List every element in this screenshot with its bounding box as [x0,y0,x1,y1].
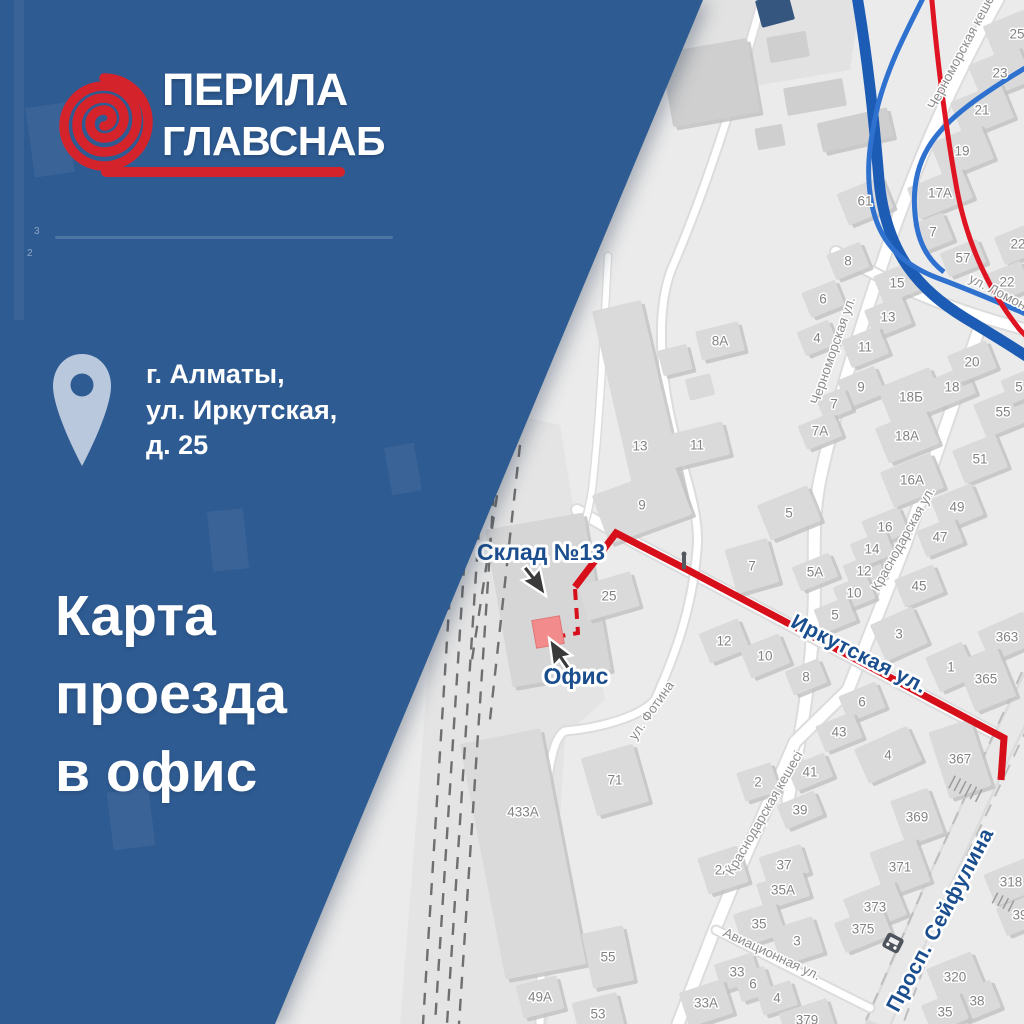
direction-map-poster: 2523211917А757222261861513119477А58А1311… [0,0,1024,1024]
building-number: 4 [884,748,892,763]
building-number: 365 [975,672,998,687]
building-number: 33 [729,965,744,980]
building-number: 35А [771,883,795,898]
building-number: 17А [928,186,952,201]
building-number: 8 [802,670,810,685]
building-number: 5 [785,506,793,521]
building-number: 10 [757,649,772,664]
building-number: 25 [1009,27,1024,42]
building-number: 51 [972,452,987,467]
building-number: 7А [812,424,829,439]
building-number: 12 [716,634,731,649]
building-number: 1 [947,660,955,675]
building-number: 61 [857,194,872,209]
building-number: 55 [995,405,1010,420]
building-number: 318 [1000,875,1023,890]
building-number: 47 [932,530,947,545]
building-number: 10 [846,586,861,601]
building-number: 3 [895,627,903,642]
building-number: 16 [877,520,892,535]
building-number: 13 [632,439,647,454]
building-number: 18 [944,380,959,395]
building-number: 5А [807,565,824,580]
building-number: 22 [1010,237,1024,252]
building-number: 38 [969,994,984,1009]
building-number: 39 [792,803,807,818]
building-number: 14 [864,542,880,557]
building-number: 8 [844,254,852,269]
building-number: 19 [954,144,969,159]
building-number: 35 [937,1005,952,1020]
city-map: 2523211917А757222261861513119477А58А1311… [0,0,1024,1024]
building-number: 367 [949,752,972,767]
building-number: 7 [929,225,937,240]
building-number: 6 [749,977,757,992]
building-number: 23 [992,66,1007,81]
building-number: 39 [1012,908,1024,923]
building-number: 4 [813,331,821,346]
building-number: 20 [964,355,979,370]
building-number: 5 [1015,380,1023,395]
building-number: 9 [857,380,865,395]
building-number: 369 [906,810,929,825]
building-number: 45 [911,579,926,594]
building-number: 4 [773,991,781,1006]
building-number: 71 [607,773,622,788]
building-number: 8А [712,334,729,349]
building-number: 7 [748,559,756,574]
building-number: 11 [690,438,704,453]
building-number: 379 [796,1013,819,1024]
building-number: 11 [858,340,872,355]
building-number: 25 [601,589,616,604]
barrier-icon [682,552,687,570]
building-number: 49А [528,990,552,1005]
building-number: 43 [831,725,846,740]
building-number: 16А [900,473,924,488]
building-number: 13 [880,310,895,325]
building-number: 18А [895,429,919,444]
building-number: 21 [974,103,989,118]
building-number: 363 [996,630,1019,645]
building-number: 12 [856,564,871,579]
building-number: 373 [864,900,887,915]
building-number: 41 [802,765,817,780]
building-number: 371 [889,860,912,875]
building-number: 320 [944,970,967,985]
building-number: 53 [590,1007,605,1022]
warehouse-callout: Склад №13 [477,539,605,565]
building-number: 6 [819,292,827,307]
building-number: 35 [751,917,766,932]
building-number: 5 [831,608,839,623]
building-number: 55 [600,950,615,965]
building-number: 33А [694,996,718,1011]
building-number: 3 [793,934,801,949]
office-marker [532,616,564,648]
building-number: 7 [830,397,838,412]
building-number: 2 [754,775,762,790]
building-number: 433А [507,805,539,820]
building-number: 18Б [899,390,923,405]
building-number: 375 [852,922,875,937]
building-number: 15 [889,276,904,291]
building-number: 49 [949,500,964,515]
building-number: 37 [776,858,791,873]
building-number: 6 [858,695,866,710]
building-number: 57 [955,251,970,266]
building-number: 9 [638,498,646,513]
